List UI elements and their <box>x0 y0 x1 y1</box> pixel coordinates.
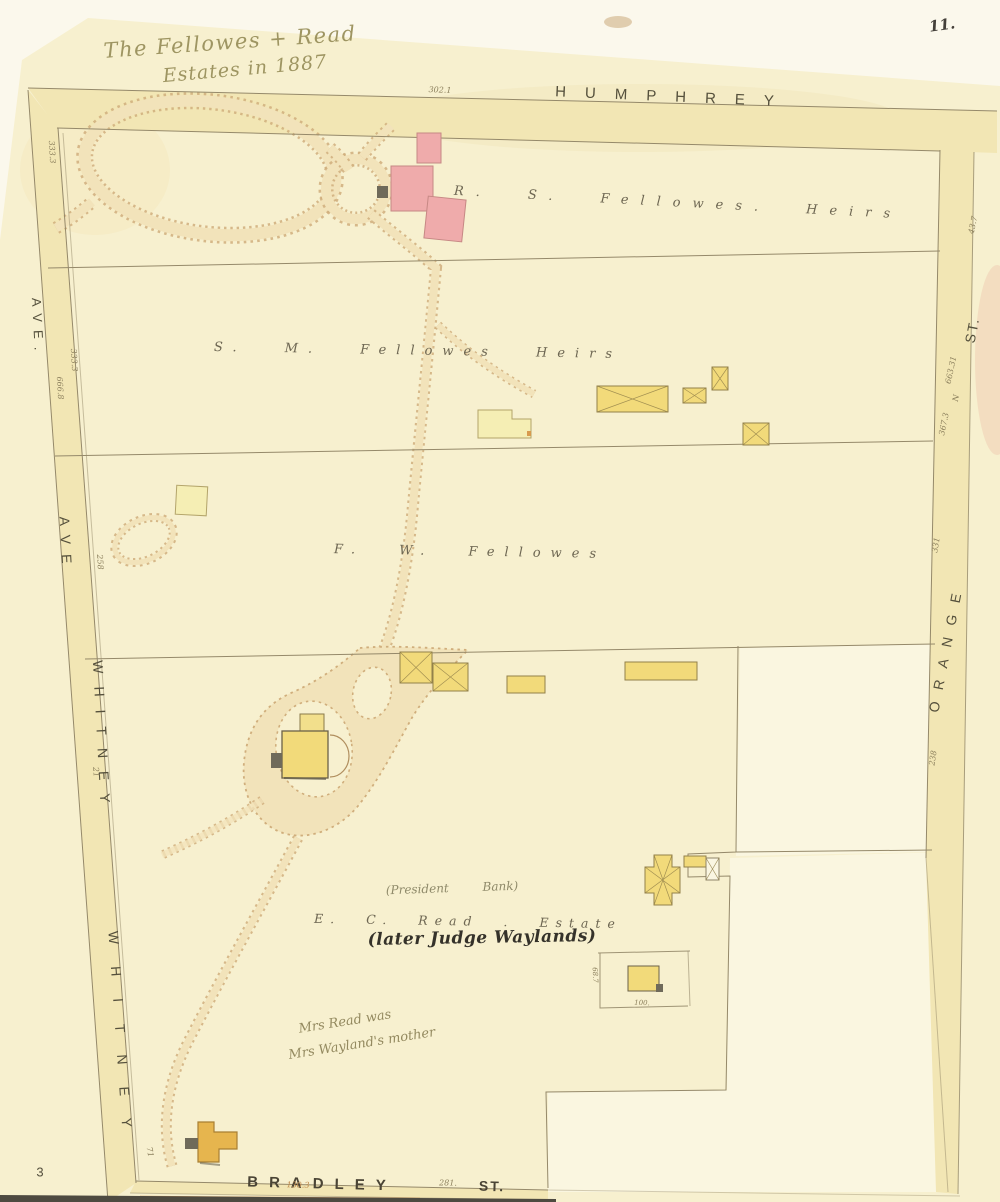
dimension-label: 21 <box>91 767 101 778</box>
map-graphics <box>0 0 1000 1202</box>
dimension-label: 302.1 <box>428 85 451 95</box>
read-house-porch <box>271 753 282 768</box>
fw-pale-building <box>175 485 207 516</box>
map-sheet: 11. The Fellowes + Read Estates in 1887 … <box>0 0 1000 1202</box>
white-barn <box>706 858 719 880</box>
dimension-label: 71 <box>145 1146 156 1158</box>
dimension-label: 68.7 <box>591 967 600 983</box>
street-label-ave: AVE <box>57 516 76 574</box>
dimension-label: 130.3 <box>286 1180 309 1189</box>
page-number: 11. <box>928 14 956 35</box>
dimension-label: 333.3 <box>69 348 79 371</box>
dimension-label: 333.3 <box>47 140 57 163</box>
building-mark <box>527 431 531 436</box>
small-yellow-shed <box>684 856 706 867</box>
note-later-judge-waylands: (later Judge Waylands) <box>367 926 596 950</box>
street-label-ave-top: AVE. <box>29 297 47 358</box>
sheet-number: 3 <box>36 1165 43 1180</box>
mansion-porch <box>377 186 388 198</box>
dimension-label: 258 <box>95 554 105 570</box>
dimension-label: 666.8 <box>55 376 65 399</box>
street-label-st-bottom: ST. <box>479 1178 506 1195</box>
orange-house-porch <box>185 1138 198 1149</box>
dimension-label: 281. <box>439 1178 457 1187</box>
dimension-label: 100. <box>634 999 650 1008</box>
lot-building <box>628 966 663 992</box>
